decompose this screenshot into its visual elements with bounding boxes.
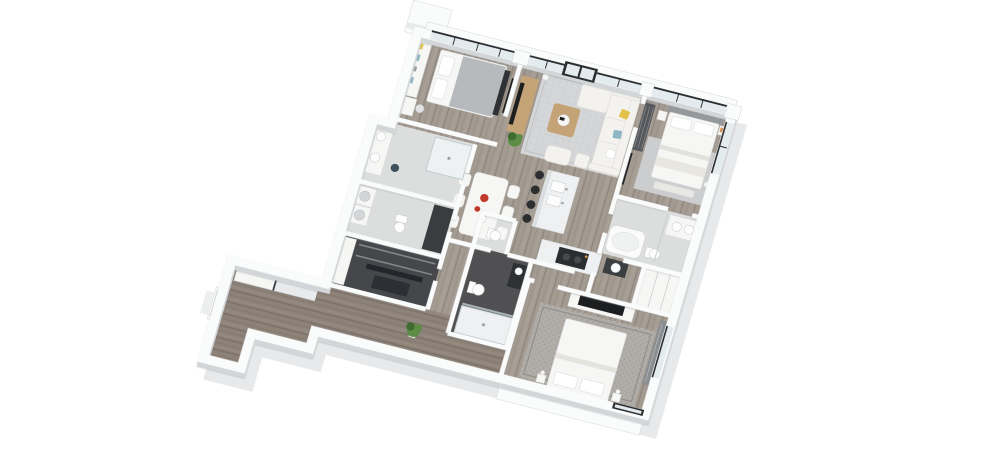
pillow-blue [613, 130, 623, 139]
floor-plan-render [0, 0, 1000, 474]
floor-plan-canvas [0, 0, 1000, 474]
